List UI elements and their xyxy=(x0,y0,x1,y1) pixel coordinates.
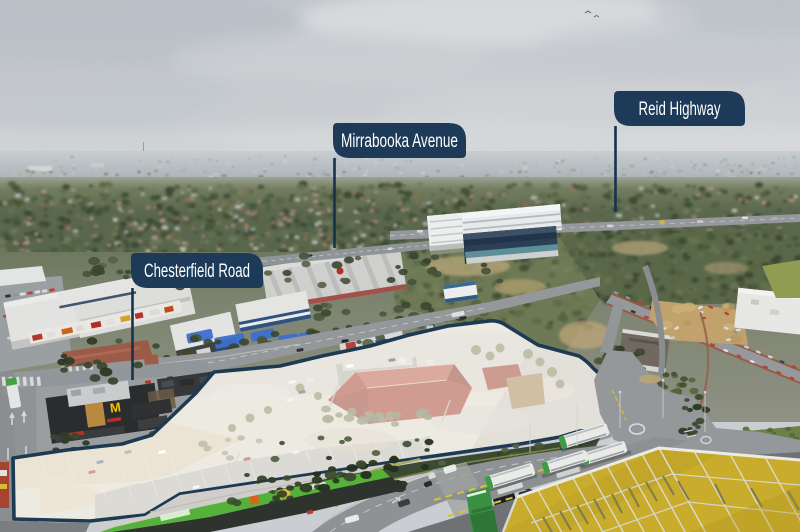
svg-text:Chesterfield Road: Chesterfield Road xyxy=(144,261,250,282)
svg-text:Mirrabooka Avenue: Mirrabooka Avenue xyxy=(341,131,458,152)
svg-text:Reid Highway: Reid Highway xyxy=(639,99,721,120)
svg-text:M: M xyxy=(109,399,122,415)
